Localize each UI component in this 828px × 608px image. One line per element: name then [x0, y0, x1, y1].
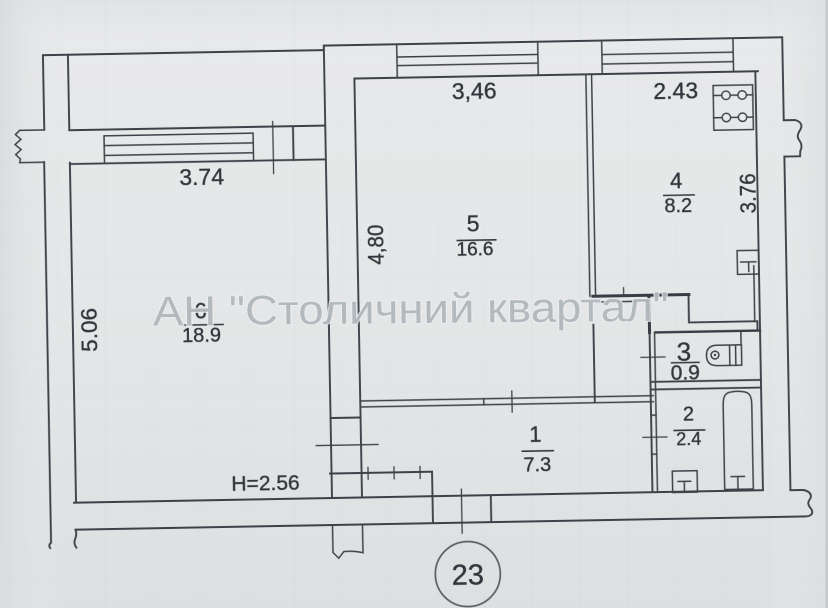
- svg-text:4,80: 4,80: [363, 224, 389, 264]
- svg-text:16.6: 16.6: [456, 239, 493, 261]
- svg-text:23: 23: [451, 559, 484, 592]
- svg-text:3.74: 3.74: [179, 163, 224, 190]
- svg-text:4: 4: [670, 168, 683, 193]
- svg-text:3.76: 3.76: [735, 173, 761, 213]
- svg-text:0.9: 0.9: [670, 361, 700, 385]
- svg-text:2.43: 2.43: [653, 77, 698, 104]
- svg-text:АН "Столичний квартал": АН "Столичний квартал": [153, 283, 669, 335]
- svg-text:7.3: 7.3: [523, 454, 551, 477]
- svg-text:5: 5: [466, 210, 479, 236]
- svg-text:3,46: 3,46: [452, 77, 497, 104]
- svg-text:8.2: 8.2: [664, 195, 692, 218]
- svg-text:H=2.56: H=2.56: [231, 472, 300, 496]
- svg-text:1: 1: [529, 422, 542, 447]
- svg-text:2: 2: [683, 403, 695, 425]
- svg-text:2.4: 2.4: [676, 429, 701, 449]
- svg-text:5.06: 5.06: [77, 308, 103, 352]
